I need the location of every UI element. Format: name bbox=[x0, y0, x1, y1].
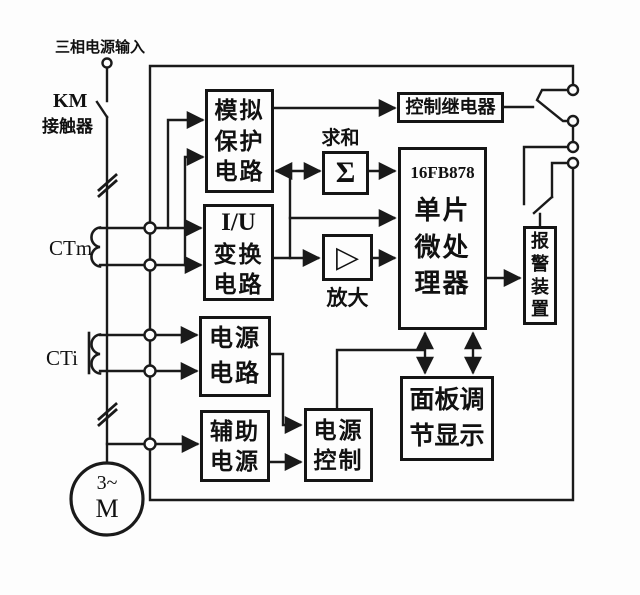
supply-input-label: 三相电源输入 bbox=[55, 36, 145, 57]
block-text: 装 bbox=[531, 276, 549, 299]
block-mcu: 16FB878 单片 微处 理器 bbox=[398, 147, 487, 330]
block-aux-power: 辅助 电源 bbox=[200, 410, 270, 482]
block-text: 面板调 bbox=[409, 383, 484, 419]
ctm-label: CTm bbox=[49, 236, 92, 261]
km-contact-icon bbox=[537, 90, 568, 121]
km-switch-icon bbox=[97, 102, 107, 117]
block-alarm-device: 报 警 装 置 bbox=[523, 226, 557, 325]
junction-node-icon bbox=[145, 439, 156, 450]
block-text: 变换 bbox=[214, 239, 264, 269]
junction-node-icon bbox=[145, 223, 156, 234]
block-text: 电源 bbox=[210, 446, 260, 476]
sigma-icon: Σ bbox=[336, 153, 356, 193]
motor-m-label: M bbox=[87, 494, 127, 524]
mcu-chip-label: 16FB878 bbox=[410, 162, 474, 184]
block-power-circuit: 电源 电路 bbox=[199, 316, 271, 397]
motor-phase-label: 3~ bbox=[87, 472, 127, 495]
block-power-control: 电源 控制 bbox=[304, 408, 373, 482]
block-text: I/U bbox=[221, 206, 256, 239]
contact-terminal-icon bbox=[568, 142, 578, 152]
km-label: KM bbox=[53, 90, 87, 113]
wire-branch-to-analog-2 bbox=[185, 157, 202, 265]
block-text: 微处 bbox=[414, 229, 470, 265]
block-text: 电源 bbox=[209, 322, 261, 357]
block-text: 辅助 bbox=[210, 416, 260, 446]
contact-terminal-icon bbox=[568, 158, 578, 168]
amplifier-triangle-icon: ▷ bbox=[336, 238, 359, 278]
block-control-relay: 控制继电器 bbox=[397, 92, 504, 123]
block-text: 控制 bbox=[314, 445, 364, 475]
block-text: 报 bbox=[531, 230, 549, 253]
alarm-contact-icon bbox=[524, 147, 568, 226]
block-text: 保护 bbox=[215, 126, 265, 156]
block-text: 理器 bbox=[414, 265, 470, 301]
block-text: 控制继电器 bbox=[406, 96, 496, 120]
block-text: 模拟 bbox=[215, 95, 265, 125]
block-amplifier: ▷ bbox=[322, 234, 373, 281]
block-text: 置 bbox=[531, 298, 549, 321]
supply-terminal-icon bbox=[103, 59, 112, 68]
ctm-coil-icon bbox=[91, 228, 100, 267]
block-analog-protection: 模拟 保护 电路 bbox=[205, 89, 274, 193]
junction-node-icon bbox=[145, 260, 156, 271]
block-text: 节显示 bbox=[409, 419, 484, 455]
block-panel-display: 面板调 节显示 bbox=[400, 376, 494, 461]
block-text: 电路 bbox=[214, 269, 264, 299]
cti-label: CTi bbox=[46, 346, 78, 371]
contact-terminal-icon bbox=[568, 85, 578, 95]
block-text: 单片 bbox=[414, 192, 470, 228]
block-text: 电路 bbox=[215, 156, 265, 186]
sum-label: 求和 bbox=[312, 123, 369, 150]
contactor-label: 接触器 bbox=[42, 112, 93, 137]
block-text: 电源 bbox=[314, 415, 364, 445]
wire-power-to-powerctrl bbox=[270, 354, 300, 425]
junction-node-icon bbox=[145, 330, 156, 341]
cti-coil-icon bbox=[91, 335, 100, 374]
block-iu-conversion: I/U 变换 电路 bbox=[203, 204, 274, 301]
junction-node-icon bbox=[145, 366, 156, 377]
block-text: 电路 bbox=[209, 357, 261, 392]
block-text: 警 bbox=[531, 253, 549, 276]
block-diagram-motor-protector: 三相电源输入 KM 接触器 CTm CTi 3~ M 求和 放大 模拟 保护 电… bbox=[0, 0, 640, 595]
block-sum-sigma: Σ bbox=[322, 151, 369, 195]
amplify-label: 放大 bbox=[320, 282, 375, 312]
contact-terminal-icon bbox=[568, 116, 578, 126]
